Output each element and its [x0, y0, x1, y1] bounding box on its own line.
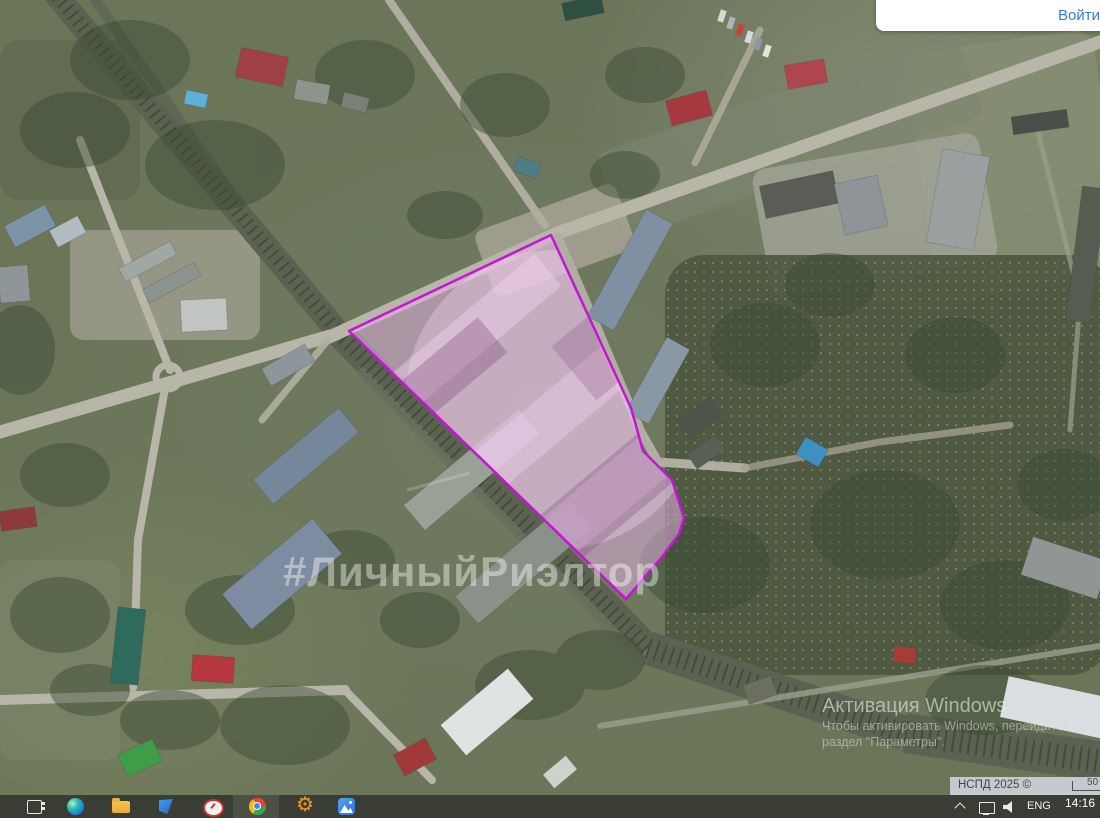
site-header-bar: Войти — [876, 0, 1100, 31]
network-icon[interactable] — [979, 802, 995, 814]
edge-browser-icon[interactable] — [67, 798, 84, 815]
windows-taskbar: ⚙ ENG 14:16 — [0, 795, 1100, 818]
tray-expand-icon[interactable] — [954, 802, 965, 813]
windows-activation-watermark: Активация Windows Чтобы активировать Win… — [822, 694, 1073, 750]
file-explorer-icon[interactable] — [112, 801, 130, 813]
login-button[interactable]: Войти — [1058, 7, 1100, 24]
settings-gear-icon[interactable]: ⚙ — [294, 794, 316, 816]
desktop: #ЛичныйРиэлтор Активация Windows Чтобы а… — [0, 0, 1100, 818]
map-viewport[interactable]: #ЛичныйРиэлтор Активация Windows Чтобы а… — [0, 0, 1100, 818]
clock-app-icon[interactable] — [203, 799, 224, 817]
map-attribution: НСПД 2025 © 50 — [950, 777, 1100, 795]
language-indicator[interactable]: ENG — [1027, 800, 1051, 812]
task-view-icon[interactable] — [27, 800, 42, 814]
activation-title: Активация Windows — [822, 694, 1073, 718]
speaker-icon[interactable] — [1003, 801, 1015, 813]
photos-icon[interactable] — [338, 798, 355, 815]
realtor-watermark: #ЛичныйРиэлтор — [283, 548, 661, 596]
chrome-icon[interactable] — [249, 798, 266, 815]
activation-line1: Чтобы активировать Windows, перейдите в — [822, 718, 1073, 734]
blue-app-icon[interactable] — [159, 799, 173, 814]
activation-line2: раздел "Параметры". — [822, 734, 1073, 750]
attribution-text: НСПД 2025 © — [958, 779, 1031, 791]
scale-label: 50 — [1087, 777, 1098, 788]
scale-bar: 50 — [1072, 781, 1100, 791]
clock-time[interactable]: 14:16 — [1065, 796, 1095, 810]
